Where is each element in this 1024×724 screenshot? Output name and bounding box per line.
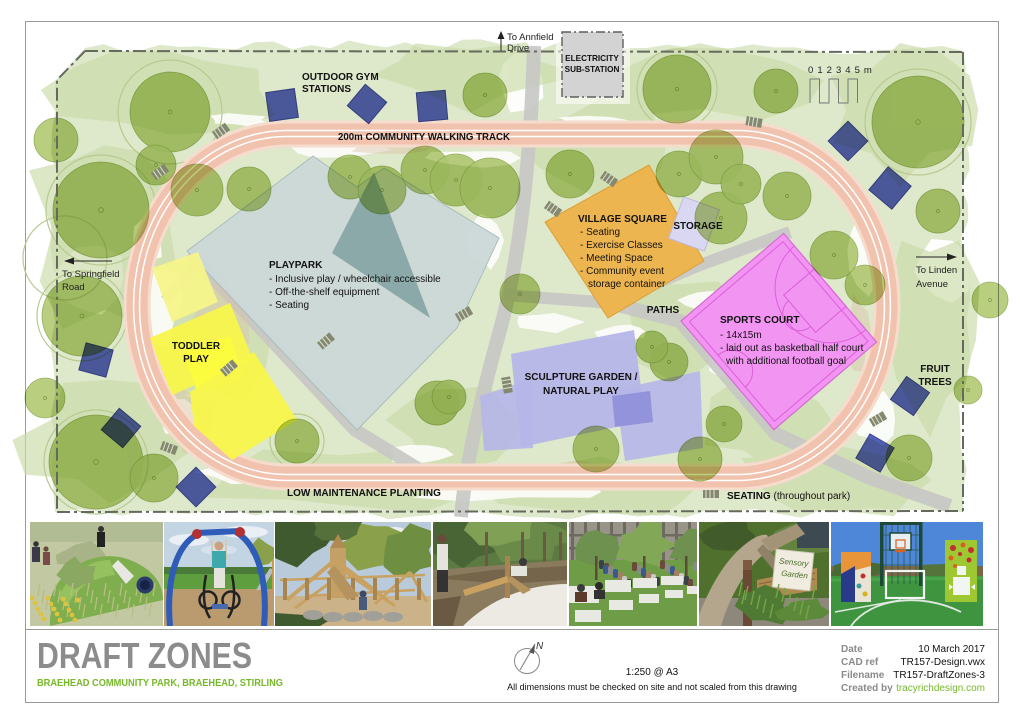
svg-text:- laid out as basketball half: - laid out as basketball half court: [720, 343, 864, 354]
svg-text:All dimensions must be checked: All dimensions must be checked on site a…: [507, 682, 797, 692]
svg-text:- Seating: - Seating: [580, 227, 620, 238]
svg-text:- 14x15m: - 14x15m: [720, 330, 762, 341]
svg-text:SCULPTURE GARDEN /: SCULPTURE GARDEN /: [525, 372, 638, 383]
svg-text:To Springfield: To Springfield: [62, 269, 120, 280]
svg-text:- Off-the-shelf equipment: - Off-the-shelf equipment: [269, 287, 380, 298]
svg-text:ELECTRICITY: ELECTRICITY: [565, 54, 619, 63]
svg-text:PLAYPARK: PLAYPARK: [269, 260, 323, 271]
svg-text:SPORTS COURT: SPORTS COURT: [720, 315, 799, 326]
svg-text:DRAFT ZONES: DRAFT ZONES: [37, 635, 252, 676]
svg-text:FRUIT: FRUIT: [920, 364, 949, 375]
svg-text:0 1 2 3 4 5 m: 0 1 2 3 4 5 m: [808, 65, 873, 76]
svg-text:PATHS: PATHS: [647, 305, 680, 316]
svg-text:10 March 2017: 10 March 2017: [918, 644, 985, 655]
svg-text:LOW MAINTENANCE PLANTING: LOW MAINTENANCE PLANTING: [287, 488, 441, 499]
svg-text:storage container: storage container: [588, 279, 666, 290]
svg-text:BRAEHEAD COMMUNITY PARK, BRAEH: BRAEHEAD COMMUNITY PARK, BRAEHEAD, STIRL…: [37, 677, 283, 689]
svg-text:200m COMMUNITY WALKING TRACK: 200m COMMUNITY WALKING TRACK: [338, 131, 510, 143]
svg-text:SUB-STATION: SUB-STATION: [565, 65, 620, 74]
svg-text:VILLAGE SQUARE: VILLAGE SQUARE: [578, 214, 667, 225]
svg-text:with additional football goal: with additional football goal: [725, 356, 846, 367]
svg-text:- Seating: - Seating: [269, 300, 309, 311]
svg-text:TR157-DraftZones-3: TR157-DraftZones-3: [893, 670, 985, 681]
svg-text:CAD ref: CAD ref: [841, 657, 879, 668]
svg-text:N: N: [536, 641, 544, 652]
svg-text:Road: Road: [62, 282, 85, 293]
svg-text:TR157-Design.vwx: TR157-Design.vwx: [901, 657, 985, 668]
svg-text:OUTDOOR GYM: OUTDOOR GYM: [302, 72, 379, 83]
svg-text:PLAY: PLAY: [183, 354, 209, 365]
svg-text:- Inclusive play / wheelchair: - Inclusive play / wheelchair accessible: [269, 274, 441, 285]
svg-text:SEATING (throughout park): SEATING (throughout park): [727, 491, 850, 502]
svg-text:Date: Date: [841, 644, 863, 655]
svg-text:To Annfield: To Annfield: [507, 32, 553, 43]
svg-text:- Community event: - Community event: [580, 266, 664, 277]
svg-text:- Meeting Space: - Meeting Space: [580, 253, 653, 264]
svg-text:To Linden: To Linden: [916, 265, 957, 276]
svg-text:1:250 @ A3: 1:250 @ A3: [626, 667, 679, 678]
svg-text:TREES: TREES: [918, 377, 952, 388]
svg-text:Drive: Drive: [507, 43, 529, 54]
svg-text:Created by: Created by: [841, 683, 893, 694]
svg-text:STATIONS: STATIONS: [302, 84, 351, 95]
svg-text:STORAGE: STORAGE: [673, 221, 723, 232]
svg-text:TODDLER: TODDLER: [172, 341, 221, 352]
svg-text:Filename: Filename: [841, 670, 885, 681]
svg-text:tracyrichdesign.com: tracyrichdesign.com: [896, 683, 985, 694]
svg-text:NATURAL PLAY: NATURAL PLAY: [543, 386, 619, 397]
svg-text:- Exercise Classes: - Exercise Classes: [580, 240, 663, 251]
svg-text:Avenue: Avenue: [916, 279, 948, 290]
